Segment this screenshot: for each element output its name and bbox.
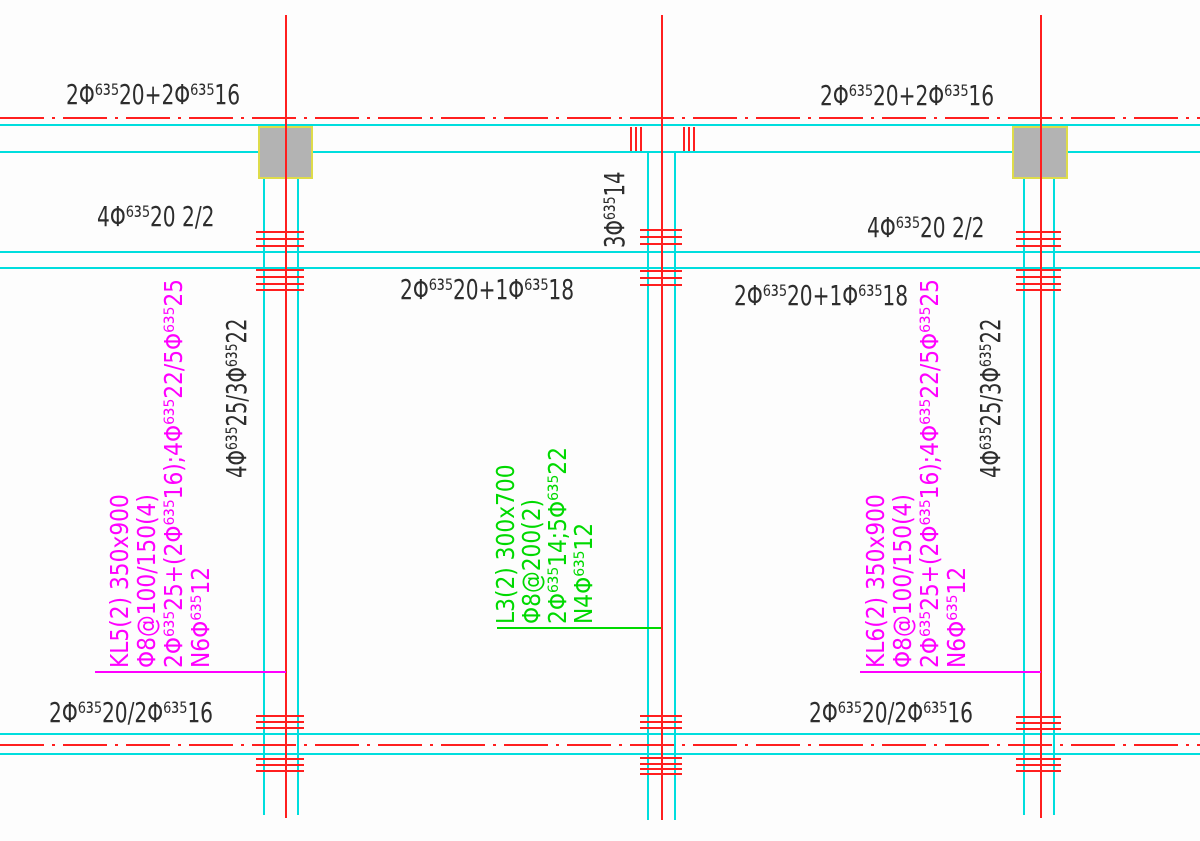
hatch-mark xyxy=(693,127,695,151)
leader-line xyxy=(95,671,286,673)
hatch-mark xyxy=(640,763,682,765)
bottom-rebar-label-left: 2Φ⁶³⁵20/2Φ⁶³⁵16 xyxy=(49,698,213,729)
beam-kl5-tag-side: N6Φ⁶³⁵12 xyxy=(187,567,214,668)
beam-l3-tag-name: L3(2) 300x700 xyxy=(492,464,519,624)
hatch-mark xyxy=(640,727,682,729)
hatch-mark xyxy=(1016,758,1061,760)
hatch-mark xyxy=(256,715,304,717)
hatch-mark xyxy=(640,236,682,238)
hatch-mark xyxy=(256,276,304,278)
hatch-mark xyxy=(1016,289,1061,291)
hatch-mark xyxy=(256,721,304,723)
hatch-mark xyxy=(256,283,304,285)
grid-line-vertical xyxy=(1040,15,1042,818)
span-top-rebar-label-left: 2Φ⁶³⁵20+1Φ⁶³⁵18 xyxy=(400,275,574,306)
hatch-mark xyxy=(640,284,682,286)
beam-kl5-tag-rebar: 2Φ⁶³⁵25+(2Φ⁶³⁵16);4Φ⁶³⁵22/5Φ⁶³⁵25 xyxy=(160,279,187,668)
beam-kl6-tag-name: KL6(2) 350x900 xyxy=(862,494,889,668)
top-support-rebar-label-left: 2Φ⁶³⁵20+2Φ⁶³⁵16 xyxy=(66,80,240,111)
hatch-mark xyxy=(640,270,682,272)
hatch-mark xyxy=(630,127,632,151)
mid-support-rebar-label-left: 4Φ⁶³⁵20 2/2 xyxy=(97,202,214,233)
column-strip-line xyxy=(297,179,299,815)
column-strip-line xyxy=(674,152,676,820)
top-support-rebar-label-right: 2Φ⁶³⁵20+2Φ⁶³⁵16 xyxy=(820,81,994,112)
hatch-mark xyxy=(256,764,304,766)
beam-l3-tag-side: N4Φ⁶³⁵12 xyxy=(570,523,597,624)
hatch-mark xyxy=(256,727,304,729)
grid-line-vertical xyxy=(661,15,663,820)
leader-line xyxy=(497,627,661,629)
span-top-rebar-label-right: 2Φ⁶³⁵20+1Φ⁶³⁵18 xyxy=(734,281,908,312)
hatch-mark xyxy=(640,757,682,759)
construction-centerline xyxy=(0,117,1200,119)
hatch-mark xyxy=(640,277,682,279)
hatch-mark xyxy=(256,231,304,233)
leader-line xyxy=(860,671,1041,673)
bottom-rebar-label-right: 2Φ⁶³⁵20/2Φ⁶³⁵16 xyxy=(809,698,973,729)
beam-kl5-tag-name: KL5(2) 350x900 xyxy=(106,494,133,668)
hatch-mark xyxy=(1016,764,1061,766)
beam-edge-line xyxy=(0,753,1200,755)
hatch-mark xyxy=(640,773,682,775)
hatch-mark xyxy=(1016,231,1061,233)
stirrup-rebar-label-mid: 3Φ⁶³⁵14 xyxy=(599,172,631,248)
hatch-mark xyxy=(1016,245,1061,247)
column-strip-line xyxy=(647,152,649,820)
hatch-mark xyxy=(688,127,690,151)
hatch-mark xyxy=(256,770,304,772)
column-strip-line xyxy=(1053,179,1055,815)
hatch-mark xyxy=(1016,770,1061,772)
beam-kl6-tag-rebar: 2Φ⁶³⁵25+(2Φ⁶³⁵16);4Φ⁶³⁵22/5Φ⁶³⁵25 xyxy=(916,279,943,668)
hatch-mark xyxy=(640,243,682,245)
beam-kl5-tag-stirrup: Φ8@100/150(4) xyxy=(133,494,160,668)
hatch-mark xyxy=(1016,283,1061,285)
hatch-mark xyxy=(640,229,682,231)
construction-centerline xyxy=(0,744,1200,746)
structural-plan-canvas: 2Φ⁶³⁵20+2Φ⁶³⁵16 2Φ⁶³⁵20+2Φ⁶³⁵16 4Φ⁶³⁵20 … xyxy=(0,0,1200,841)
hatch-mark xyxy=(640,127,642,151)
beam-kl6-tag-stirrup: Φ8@100/150(4) xyxy=(889,494,916,668)
hatch-mark xyxy=(256,758,304,760)
column-strip-line xyxy=(263,179,265,815)
beam-kl6-tag-side: N6Φ⁶³⁵12 xyxy=(943,567,970,668)
hatch-mark xyxy=(640,715,682,717)
hatch-mark xyxy=(683,127,685,151)
hatch-mark xyxy=(1016,276,1061,278)
beam-l3-tag-stirrup: Φ8@200(2) xyxy=(518,499,545,624)
mid-support-rebar-label-right: 4Φ⁶³⁵20 2/2 xyxy=(867,213,984,244)
hatch-mark xyxy=(1016,722,1061,724)
hatch-mark xyxy=(1016,238,1061,240)
hatch-mark xyxy=(256,245,304,247)
hatch-mark xyxy=(635,127,637,151)
hatch-mark xyxy=(1016,728,1061,730)
hatch-mark xyxy=(1016,269,1061,271)
beam-edge-line xyxy=(0,251,1200,253)
beam-edge-line xyxy=(0,733,1200,735)
hatch-mark xyxy=(256,269,304,271)
side-rebar-label-left: 4Φ⁶³⁵25/3Φ⁶³⁵22 xyxy=(221,319,253,478)
hatch-mark xyxy=(640,721,682,723)
hatch-mark xyxy=(256,289,304,291)
side-rebar-label-right: 4Φ⁶³⁵25/3Φ⁶³⁵22 xyxy=(975,319,1007,478)
hatch-mark xyxy=(1016,716,1061,718)
hatch-mark xyxy=(256,238,304,240)
column-strip-line xyxy=(1023,179,1025,815)
grid-line-vertical xyxy=(285,15,287,818)
beam-l3-tag-rebar: 2Φ⁶³⁵14;5Φ⁶³⁵22 xyxy=(544,447,571,624)
hatch-mark xyxy=(640,768,682,770)
